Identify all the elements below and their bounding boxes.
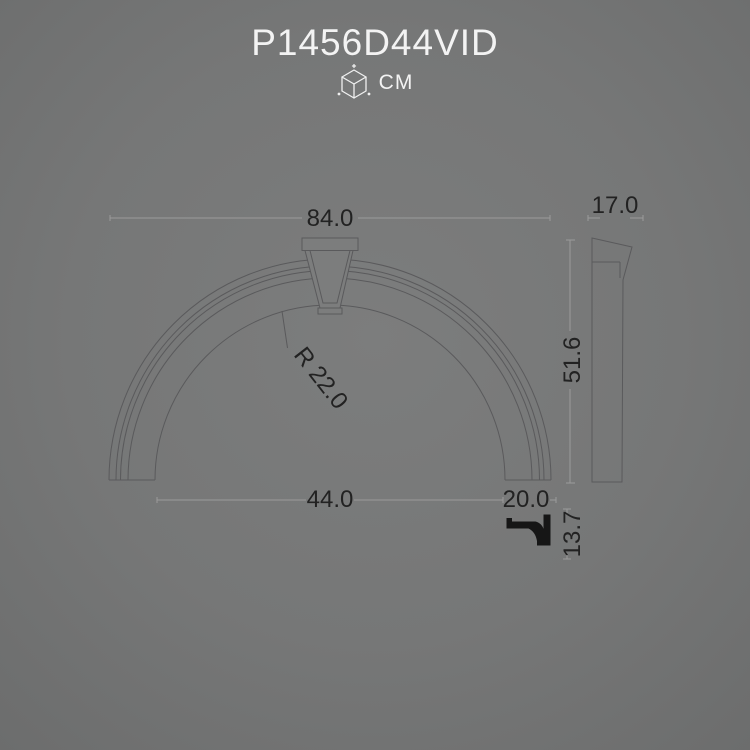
front-view-arch: R 22.0 [109, 238, 551, 480]
dimension-inner-span: 44.0 [307, 486, 354, 513]
technical-drawing: R 22.0 [0, 0, 750, 750]
dimension-height: 51.6 [559, 337, 586, 384]
dimension-section-height: 13.7 [559, 511, 586, 558]
dimension-foot-width: 20.0 [503, 486, 550, 513]
dimension-arc-radius: R 22.0 [288, 342, 353, 414]
dimension-overall-width: 84.0 [307, 205, 354, 232]
side-view-profile [592, 238, 632, 482]
radius-leader-line [282, 311, 288, 348]
dimension-lines [110, 215, 643, 559]
dimension-side-depth: 17.0 [592, 192, 639, 219]
moulding-cross-section [507, 515, 551, 546]
technical-drawing-page: { "header": { "title": "P1456D44VID", "u… [0, 0, 750, 750]
keystone [302, 238, 358, 314]
